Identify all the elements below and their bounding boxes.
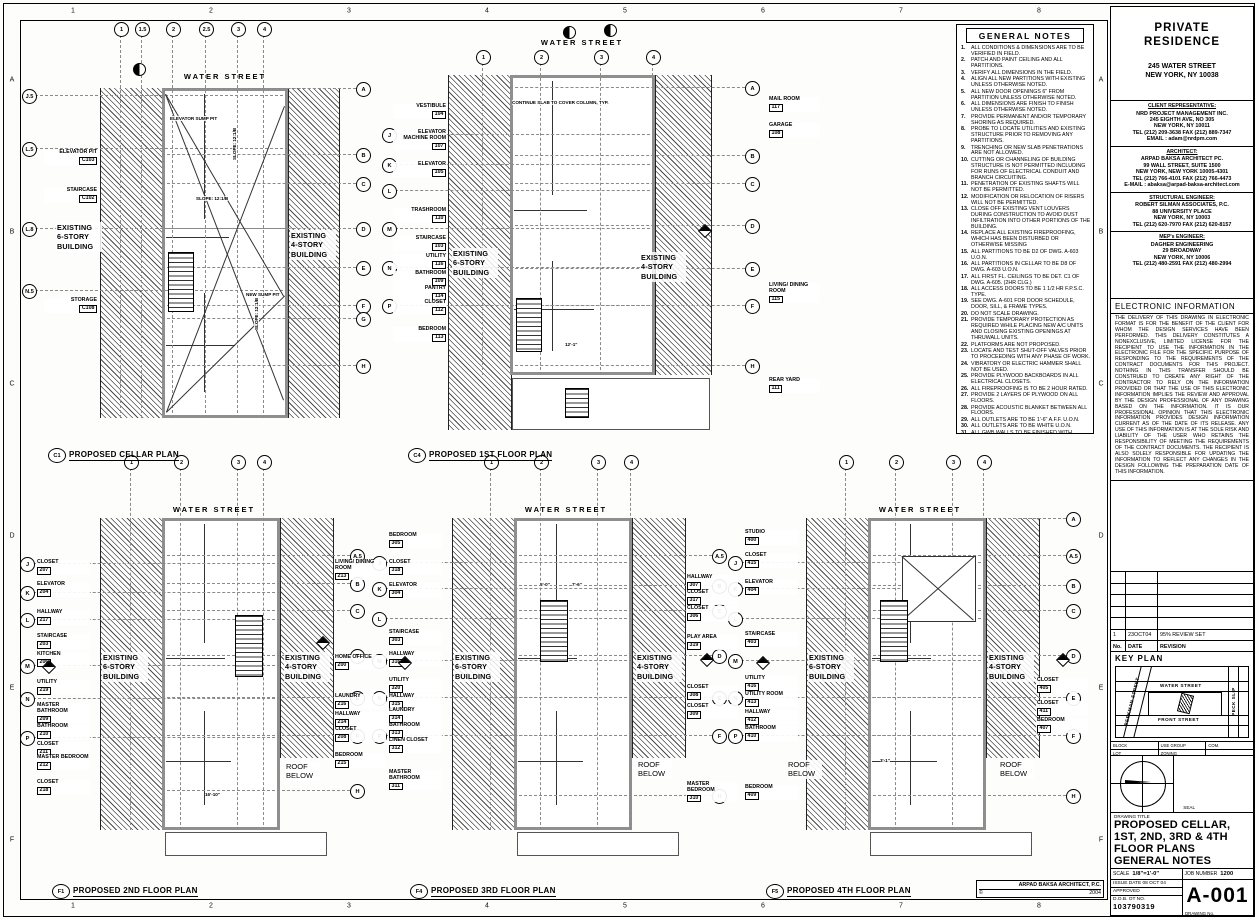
room-number-tag: C103 — [79, 157, 97, 165]
room-name: UTILITY ROOM — [745, 692, 797, 698]
room-name: GARAGE — [769, 123, 819, 129]
room-label: ELEVATOR MACHINE ROOM107 — [393, 130, 447, 150]
room-name: UTILITY — [37, 680, 89, 686]
room-name: BEDROOM — [389, 533, 441, 539]
note-text: PROVIDE 2 LAYERS OF PLYWOOD ON ALL FLOOR… — [971, 393, 1091, 405]
room-name: CLOSET — [687, 606, 737, 612]
street-label: WATER STREET — [541, 38, 623, 47]
note-number: 31. — [961, 431, 971, 434]
general-note-item: 9.TRENCHING OR NEW SLAB PENETRATIONS ARE… — [961, 146, 1091, 158]
room-label: LAUNDRY314 — [388, 708, 442, 723]
north-compass-icon — [1120, 761, 1166, 807]
credit-firm: ARPAD BAKSA ARCHITECT, P.C. — [979, 882, 1101, 888]
building-label: EXISTING 6-STORY BUILDING — [454, 652, 500, 682]
margin-number: 6 — [761, 8, 765, 15]
room-number-tag: 217 — [37, 617, 51, 625]
note-number: 17. — [961, 275, 971, 287]
grid-bubble: H — [350, 784, 365, 799]
building-label: EXISTING 6-STORY BUILDING — [56, 222, 102, 252]
general-note-item: 5.ALL NEW DOOR OPENINGS 6" FROM PARTITIO… — [961, 90, 1091, 102]
grid-line-horizontal — [868, 735, 1066, 736]
room-name: BATHROOM — [745, 726, 797, 732]
grid-bubble: 1 — [476, 50, 491, 65]
room-name: BATHROOM — [37, 724, 89, 730]
yard-stairs-glyph — [565, 388, 589, 418]
room-number-tag: 210 — [37, 731, 51, 739]
grid-line-vertical — [205, 35, 206, 418]
margin-number: 7 — [899, 903, 903, 910]
grid-bubble: E — [745, 262, 760, 277]
street-label: WATER STREET — [173, 505, 255, 514]
grid-line-horizontal — [510, 87, 745, 88]
contact-heading: STRUCTURAL ENGINEER: — [1112, 195, 1252, 201]
room-label: GARAGE108 — [768, 123, 820, 138]
note-text: PATCH AND PAINT CEILING AND ALL PARTITIO… — [971, 58, 1091, 70]
grid-line-horizontal — [162, 183, 356, 184]
note-number: 28. — [961, 406, 971, 418]
room-label: CLOSET318 — [388, 560, 442, 575]
note-text: ALL DIMENSIONS ARE FINISH TO FINISH UNLE… — [971, 102, 1091, 114]
room-number-tag: 103 — [432, 243, 446, 251]
grid-bubble: J — [20, 557, 35, 572]
note-text: PENETRATION OF EXISTING SHAFTS WILL NOT … — [971, 182, 1091, 194]
grid-line-vertical — [120, 35, 121, 418]
grid-line-vertical — [652, 63, 653, 375]
grid-bubble: L — [382, 184, 397, 199]
room-number-tag: 400 — [745, 537, 759, 545]
room-name: CLOSET — [37, 560, 89, 566]
room-number-tag: 212 — [37, 762, 51, 770]
grid-line-horizontal — [868, 518, 1066, 519]
room-name: BEDROOM — [1037, 718, 1087, 724]
room-label: MASTER BATHROOM209 — [36, 703, 90, 723]
grid-line-vertical — [952, 468, 953, 830]
general-note-item: 31.ALL GWB WALLS TO BE FINISHED WITH ROU… — [961, 431, 1091, 434]
grid-bubble: L — [20, 613, 35, 628]
note-text: REPLACE ALL EXISTING FIREPROOFING, WHICH… — [971, 231, 1091, 249]
grid-bubble: A.5 — [712, 549, 727, 564]
margin-number: 4 — [485, 8, 489, 15]
room-number-tag: 403 — [745, 639, 759, 647]
room-number-tag: 405 — [1037, 685, 1051, 693]
note-number: 9. — [961, 146, 971, 158]
grid-line-horizontal — [510, 225, 745, 226]
note-text: TRENCHING OR NEW SLAB PENETRATIONS ARE N… — [971, 146, 1091, 158]
project-address: 245 WATER STREET NEW YORK, NY 10038 — [1111, 62, 1253, 81]
grid-bubble: P — [20, 731, 35, 746]
grid-line-vertical — [983, 468, 984, 830]
copyright-icon: © — [979, 890, 983, 896]
room-label: MASTER BEDROOM310 — [686, 782, 738, 802]
grid-bubble: A — [1066, 512, 1081, 527]
room-label: BATHROOM210 — [36, 724, 90, 739]
grid-line-vertical — [130, 468, 131, 830]
note-number: 7. — [961, 115, 971, 127]
room-number-tag: 111 — [769, 385, 782, 393]
margin-letter: A — [1099, 77, 1104, 84]
grid-bubble: 4 — [977, 455, 992, 470]
grid-line-horizontal — [510, 305, 745, 306]
room-number-tag: 416 — [745, 683, 759, 691]
contact-heading: ARCHITECT: — [1112, 149, 1252, 155]
plan-title-tag: C1 — [48, 448, 66, 463]
grid-line-horizontal — [162, 555, 350, 556]
note-text: PROVIDE TEMPORARY PROTECTION AS REQUIRED… — [971, 318, 1091, 342]
general-note-item: 23.LOCATE AND TEST SHUT-OFF VALVES PRIOR… — [961, 349, 1091, 361]
room-name: CLOSET — [687, 685, 737, 691]
roof-below-label: ROOF BELOW — [788, 760, 822, 779]
grid-bubble: 3 — [231, 22, 246, 37]
revision-cell — [1158, 572, 1253, 583]
grid-line-vertical — [630, 468, 631, 830]
grid-bubble: N — [20, 692, 35, 707]
room-number-tag: 208 — [335, 734, 349, 742]
room-name: HOME OFFICE — [335, 655, 385, 661]
room-label: LIVING/ DINING ROOM115 — [768, 283, 820, 303]
grid-bubble: K — [20, 586, 35, 601]
room-label: STAIRCASE303 — [388, 630, 442, 645]
contact-heading: MEP's ENGINEER: — [1112, 234, 1252, 240]
staircase-glyph — [880, 600, 908, 662]
note-number: 11. — [961, 182, 971, 194]
grid-line-horizontal — [395, 228, 655, 229]
issue-date-value: 08 OCT 04 — [1143, 881, 1166, 886]
consultant-contacts: CLIENT REPRESENTATIVE:NRD PROJECT MANAGE… — [1111, 101, 1253, 299]
plan-title-tag: F4 — [410, 884, 428, 899]
room-label: ELEVATOR304 — [388, 583, 442, 598]
note-number: 12. — [961, 195, 971, 207]
note-number: 1. — [961, 46, 971, 58]
revision-cell: 95% REVIEW SET — [1158, 630, 1253, 641]
grid-line-horizontal — [385, 618, 632, 619]
room-number-tag: 311 — [389, 783, 403, 791]
seal-label: SEAL — [1183, 805, 1195, 810]
room-name: MASTER BEDROOM — [687, 782, 737, 794]
margin-number: 5 — [623, 8, 627, 15]
staircase-glyph — [235, 615, 263, 677]
room-number-tag: 317 — [687, 597, 701, 605]
room-name: HALLWAY — [335, 712, 385, 718]
key-plan-title: KEY PLAN — [1111, 652, 1253, 663]
grid-line-horizontal — [162, 583, 350, 584]
room-label: CLOSET207 — [36, 560, 90, 575]
room-label: BEDROOM215 — [334, 753, 386, 768]
grid-line-vertical — [141, 35, 142, 418]
project-address-line1: 245 WATER STREET — [1111, 62, 1253, 71]
grid-line-horizontal — [162, 610, 350, 611]
room-label: REAR YARD111 — [768, 378, 820, 393]
general-note-item: 4.ALIGN ALL NEW PARTITIONS WITH EXISTING… — [961, 77, 1091, 89]
grid-line-vertical — [600, 63, 601, 375]
room-number-tag: 110 — [432, 215, 446, 223]
grid-line-horizontal — [741, 660, 986, 661]
revision-cell: No. — [1111, 641, 1126, 652]
revision-cell: 1 — [1111, 630, 1126, 641]
grid-line-vertical — [490, 468, 491, 830]
grid-line-horizontal — [162, 88, 356, 89]
room-number-tag: 213 — [335, 573, 349, 581]
scale-cell: SCALE 1/8"=1'-0" — [1111, 869, 1183, 879]
grid-bubble: C — [350, 604, 365, 619]
general-note-item: 16.ALL PARTITIONS IN CELLAR TO BE D8 OF … — [961, 262, 1091, 274]
room-label: CLOSET411 — [1036, 701, 1088, 716]
note-text: PROVIDE PERMANENT AND/OR TEMPORARY SHORI… — [971, 115, 1091, 127]
room-label: CLOSET208 — [334, 727, 386, 742]
scale-value: 1/8"=1'-0" — [1132, 871, 1159, 877]
contact-section: MEP's ENGINEER:DAGHER ENGINEERING29 BROA… — [1111, 232, 1253, 270]
room-name: LIVING/ DINING ROOM — [335, 560, 385, 572]
key-plan-street-right-label: PECK SLIP — [1231, 687, 1236, 716]
room-label: STAIRCASE403 — [744, 632, 798, 647]
room-name: MASTER BATHROOM — [37, 703, 89, 715]
grid-bubble: A — [745, 81, 760, 96]
revision-cell: 23OCT04 — [1126, 630, 1158, 641]
note-number: 15. — [961, 250, 971, 262]
grid-bubble: 3 — [591, 455, 606, 470]
room-name: ELEVATOR — [37, 582, 89, 588]
room-label: BEDROOM407 — [1036, 718, 1088, 733]
room-name: CLOSET — [37, 780, 89, 786]
room-name: HALLWAY — [389, 652, 441, 658]
margin-number: 3 — [347, 903, 351, 910]
margin-number: 7 — [899, 8, 903, 15]
room-label: MAIL ROOM117 — [768, 97, 820, 112]
title-block-column: PRIVATE RESIDENCE 245 WATER STREET NEW Y… — [1110, 6, 1254, 916]
grid-bubble: B — [745, 149, 760, 164]
contact-line: TEL (212) 620-7970 FAX (212) 620-8157 — [1112, 222, 1252, 228]
grid-line-horizontal — [35, 95, 288, 96]
grid-bubble: C — [1066, 604, 1081, 619]
staircase-glyph — [168, 252, 194, 312]
room-name: CLOSET — [687, 590, 737, 596]
room-number-tag: 413 — [745, 699, 759, 707]
room-label: CLOSET308 — [686, 685, 738, 700]
drawing-title-line2: 1ST, 2ND, 3RD & 4TH — [1114, 831, 1250, 843]
room-label: BEDROOM113 — [393, 327, 447, 342]
grid-bubble: H — [356, 359, 371, 374]
revision-cell — [1158, 595, 1253, 606]
room-number-tag: 115 — [769, 296, 783, 304]
grid-line-vertical — [597, 468, 598, 830]
job-number-value: 1200 — [1220, 871, 1233, 877]
plan-title-tag: F5 — [766, 884, 784, 899]
general-note-item: 18.ALL ACCESS DOORS TO BE 1 1/2 HR F.P.S… — [961, 287, 1091, 299]
grid-bubble: H — [745, 359, 760, 374]
revision-cell — [1126, 595, 1158, 606]
margin-letter: B — [1099, 229, 1104, 236]
drawing-number-cell: A-001 DRAWING No. — [1182, 880, 1253, 917]
interior-partition — [166, 345, 235, 346]
room-number-tag: C102 — [79, 195, 97, 203]
interior-partition — [552, 81, 553, 195]
room-number-tag: 107 — [432, 143, 446, 151]
room-name: STAIRCASE — [394, 236, 446, 242]
grid-line-horizontal — [514, 795, 712, 796]
revision-cell: REVISION — [1158, 641, 1253, 652]
room-number-tag: 320 — [389, 685, 403, 693]
section-marker-icon — [563, 26, 576, 39]
plan-annotation: 16'-10" — [205, 792, 220, 797]
room-name: ELEVATOR — [394, 162, 446, 168]
room-name: HALLWAY — [37, 610, 89, 616]
grid-bubble: 2 — [166, 22, 181, 37]
revision-cell — [1111, 618, 1126, 629]
general-note-item: 11.PENETRATION OF EXISTING SHAFTS WILL N… — [961, 182, 1091, 194]
room-label: BEDROOM305 — [388, 533, 442, 548]
key-plan-map: WATER STREET FRONT STREET BEEKMAN STREET… — [1115, 666, 1249, 738]
plan-title-tag: C4 — [408, 448, 426, 463]
margin-letter: A — [10, 77, 15, 84]
party-wall-hatch — [632, 518, 686, 758]
zoning-cell: USE GROUP — [1159, 742, 1207, 749]
key-plan-street-bottom-label: FRONT STREET — [1158, 717, 1199, 722]
plan-annotation: 7'-6" — [572, 582, 582, 587]
room-number-tag: C108 — [79, 305, 97, 313]
issue-date-label: ISSUE DATE — [1113, 881, 1141, 886]
room-number-tag: 309 — [687, 711, 701, 719]
note-number: 19. — [961, 299, 971, 311]
plan-annotation: 3'-1" — [880, 758, 890, 763]
room-label: CLOSET218 — [36, 780, 90, 795]
drawing-title-line3: FLOOR PLANS — [1114, 843, 1250, 855]
street-label: WATER STREET — [184, 72, 266, 81]
credit-year: 2004 — [1089, 890, 1101, 896]
general-note-item: 6.ALL DIMENSIONS ARE FINISH TO FINISH UN… — [961, 102, 1091, 114]
room-number-tag: 412 — [745, 717, 759, 725]
section-marker-icon — [133, 63, 146, 76]
room-name: ELEVATOR — [389, 583, 441, 589]
general-notes-panel: GENERAL NOTES 1.ALL CONDITIONS & DIMENSI… — [956, 24, 1094, 434]
room-name: KITCHEN — [37, 652, 89, 658]
interior-partition — [166, 761, 231, 762]
room-label: BATHROOM109 — [393, 271, 447, 286]
contact-line: EMAIL : adam@nrdpm.com — [1112, 136, 1252, 142]
note-text: PROVIDE PLYWOOD BACKBOARDS IN ALL ELECTR… — [971, 374, 1091, 386]
room-label: HOME OFFICE200 — [334, 655, 386, 670]
room-number-tag: 218 — [37, 787, 51, 795]
revision-header-row: No.DATEREVISION — [1111, 640, 1253, 652]
grid-line-horizontal — [162, 790, 350, 791]
electronic-information-box: ELECTRONIC INFORMATION THE DELIVERY OF T… — [1111, 299, 1253, 481]
general-notes-list: 1.ALL CONDITIONS & DIMENSIONS ARE TO BE … — [957, 46, 1093, 434]
contact-line: E-MAIL : abaksa@arpad-baksa-architect.co… — [1112, 182, 1252, 188]
room-name: HALLWAY — [389, 694, 441, 700]
grid-line-vertical — [482, 63, 483, 375]
grid-bubble: 1 — [839, 455, 854, 470]
room-name: LIVING/ DINING ROOM — [769, 283, 819, 295]
revision-row — [1111, 617, 1253, 629]
grid-bubble: 3 — [231, 455, 246, 470]
grid-bubble: A — [356, 82, 371, 97]
general-note-item: 21.PROVIDE TEMPORARY PROTECTION AS REQUI… — [961, 318, 1091, 342]
building-interior — [514, 518, 632, 830]
room-number-tag: 105 — [432, 169, 446, 177]
room-label: BATHROOM313 — [388, 723, 442, 738]
note-number: 6. — [961, 102, 971, 114]
revision-cell — [1126, 607, 1158, 618]
room-name: BATHROOM — [389, 723, 441, 729]
room-name: MAIL ROOM — [769, 97, 819, 103]
grid-bubble: 2.5 — [199, 22, 214, 37]
note-text: ALL GWB WALLS TO BE FINISHED WITH ROUGH … — [971, 431, 1091, 434]
compass-needle-icon — [1125, 780, 1151, 784]
note-number: 27. — [961, 393, 971, 405]
plan-annotation: SLOPE: 12:1/B — [254, 298, 259, 330]
grid-bubble: 4 — [624, 455, 639, 470]
contact-line: TEL (212) 480-2591 FAX (212) 480-2994 — [1112, 261, 1252, 267]
grid-bubble: C — [745, 177, 760, 192]
plan-title-text: PROPOSED 2ND FLOOR PLAN — [73, 886, 198, 897]
room-label: UTILITY116 — [393, 254, 447, 269]
building-label: EXISTING 6-STORY BUILDING — [102, 652, 148, 682]
room-number-tag: 304 — [389, 590, 403, 598]
margin-letter: E — [1099, 685, 1104, 692]
note-text: SEE DWG. A-601 FOR DOOR SCHEDULE, DOOR, … — [971, 299, 1091, 311]
room-number-tag: 409 — [745, 792, 759, 800]
project-box: PRIVATE RESIDENCE 245 WATER STREET NEW Y… — [1111, 7, 1253, 101]
grid-bubble: 2 — [534, 50, 549, 65]
zoning-row: LOTZONING — [1111, 749, 1253, 756]
room-number-tag: 104 — [432, 111, 446, 119]
grid-line-horizontal — [162, 735, 350, 736]
room-label: STORAGEC108 — [44, 298, 98, 313]
grid-bubble: A.5 — [1066, 549, 1081, 564]
revision-row — [1111, 572, 1253, 583]
building-label: EXISTING 6-STORY BUILDING — [808, 652, 854, 682]
room-label: HALLWAY412 — [744, 710, 798, 725]
room-label: CLOSET317 — [686, 590, 738, 605]
key-plan-street-top-label: WATER STREET — [1160, 683, 1202, 688]
grid-bubble: M — [728, 654, 743, 669]
room-label: HALLWAY307 — [686, 575, 738, 590]
room-label: LIVING/ DINING ROOM213 — [334, 560, 386, 580]
note-number: 8. — [961, 127, 971, 145]
room-label: UTILITY416 — [744, 676, 798, 691]
project-address-line2: NEW YORK, NY 10038 — [1111, 71, 1253, 80]
grid-line-horizontal — [162, 154, 356, 155]
note-text: ALL PARTITIONS IN CELLAR TO BE D8 OF DWG… — [971, 262, 1091, 274]
grid-bubble: J — [728, 556, 743, 571]
grid-line-horizontal — [162, 228, 356, 229]
revision-spacer — [1111, 481, 1253, 572]
room-number-tag: 318 — [389, 567, 403, 575]
grid-bubble: B — [1066, 579, 1081, 594]
note-text: ALIGN ALL NEW PARTITIONS WITH EXISTING U… — [971, 77, 1091, 89]
note-number: 10. — [961, 158, 971, 182]
drawing-number: A-001 — [1182, 884, 1253, 908]
margin-number: 2 — [209, 903, 213, 910]
building-label: EXISTING 4-STORY BUILDING — [636, 652, 682, 682]
plan-title: C4PROPOSED 1ST FLOOR PLAN — [408, 448, 552, 463]
room-number-tag: 415 — [745, 560, 759, 568]
room-name: LAUNDRY — [335, 694, 385, 700]
note-number: 13. — [961, 207, 971, 231]
room-number-tag: 203 — [37, 641, 51, 649]
margin-number: 8 — [1037, 903, 1041, 910]
credit-block: ARPAD BAKSA ARCHITECT, P.C. © 2004 — [976, 880, 1104, 898]
grid-bubble: L.8 — [22, 222, 37, 237]
grid-bubble: N.5 — [22, 284, 37, 299]
grid-line-horizontal — [514, 735, 712, 736]
room-name: STORAGE — [45, 298, 97, 304]
grid-bubble: J.5 — [22, 89, 37, 104]
room-name: UTILITY — [389, 678, 441, 684]
project-name: PRIVATE RESIDENCE — [1111, 21, 1253, 50]
yard-area — [517, 832, 679, 856]
margin-number: 1 — [71, 8, 75, 15]
grid-line-horizontal — [514, 555, 712, 556]
general-note-item: 7.PROVIDE PERMANENT AND/OR TEMPORARY SHO… — [961, 115, 1091, 127]
